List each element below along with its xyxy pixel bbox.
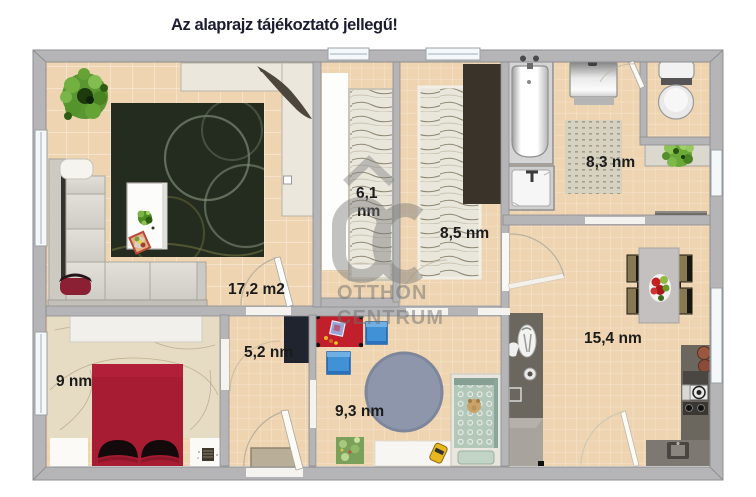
- svg-text:8,5 nm: 8,5 nm: [440, 225, 489, 242]
- svg-text:17,2 m2: 17,2 m2: [228, 281, 285, 298]
- svg-text:CENTRUM: CENTRUM: [337, 307, 444, 329]
- svg-text:OTTHON: OTTHON: [337, 282, 427, 304]
- svg-text:Az alaprajz tájékoztató jelleg: Az alaprajz tájékoztató jellegű!: [171, 16, 398, 34]
- svg-text:9 nm: 9 nm: [56, 373, 92, 390]
- svg-text:15,4 nm: 15,4 nm: [584, 330, 642, 347]
- svg-text:8,3 nm: 8,3 nm: [586, 154, 635, 171]
- svg-text:5,2 nm: 5,2 nm: [244, 344, 293, 361]
- svg-text:9,3 nm: 9,3 nm: [335, 403, 384, 420]
